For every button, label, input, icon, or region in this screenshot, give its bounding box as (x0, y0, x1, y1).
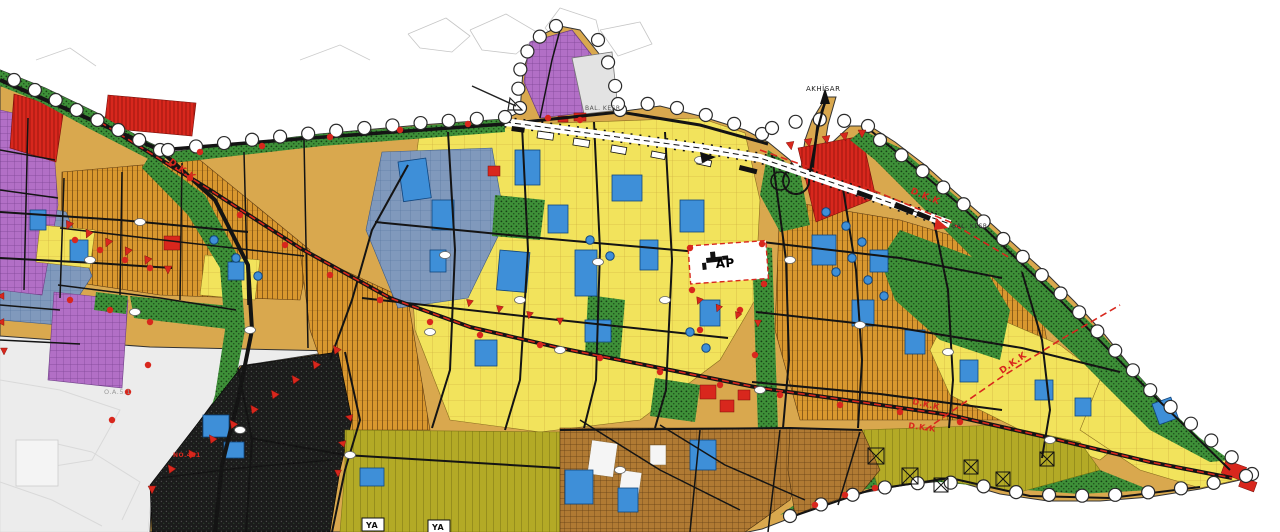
facility-parcel-blue (432, 200, 454, 230)
facility-parcel-blue (475, 340, 497, 366)
tree-row-circles (302, 127, 315, 140)
road-number-badge (440, 252, 451, 259)
facility-parcel-blue (905, 330, 925, 354)
facility-parcel-blue (640, 240, 658, 270)
junction-red-dots (697, 327, 703, 333)
road-number-badge (245, 327, 256, 334)
road-number-badge (135, 219, 146, 226)
tree-row-circles (533, 30, 546, 43)
road-number-badge (785, 257, 796, 264)
tree-row-circles (1164, 400, 1177, 413)
junction-red-dots (107, 307, 113, 313)
label-no451: NO.451 (173, 452, 201, 459)
tree-row-circles (838, 114, 851, 127)
facility-parcel-blue (618, 488, 638, 512)
tree-row-circles (977, 480, 990, 493)
tree-row-circles (1144, 384, 1157, 397)
junction-red-dots (147, 319, 153, 325)
tree-row-circles (442, 114, 455, 127)
tree-row-circles (789, 115, 802, 128)
roundabout-blue-dots (864, 276, 872, 284)
facility-parcel-blue (565, 470, 593, 504)
facility-parcel-blue (680, 200, 704, 232)
facility-parcel-blue (575, 250, 597, 296)
tree-row-circles (699, 108, 712, 121)
junction-red-dots (259, 143, 265, 149)
tree-row-circles (1076, 489, 1089, 502)
tree-row-circles (499, 111, 512, 124)
junction-red-dots (687, 245, 693, 251)
label-ya-1: YA (365, 521, 379, 530)
road-number-badge (943, 349, 954, 356)
road-number-badge (85, 257, 96, 264)
road-number-badge (345, 452, 356, 459)
tree-row-circles (274, 130, 287, 143)
junction-red-dots (427, 319, 433, 325)
facility-parcel-blue (1075, 398, 1091, 416)
tree-row-circles (218, 137, 231, 150)
tree-row-circles (957, 198, 970, 211)
road-number-badge (130, 309, 141, 316)
junction-red-dots (237, 212, 243, 218)
label-ya-2: YA (431, 523, 445, 532)
tree-row-circles (1142, 486, 1155, 499)
road-number-badge (425, 329, 436, 336)
facility-parcel-blue (515, 150, 540, 185)
label-ap: AP (715, 256, 735, 271)
tree-row-circles (670, 102, 683, 115)
road-number-badge (755, 387, 766, 394)
junction-red-dots (465, 121, 471, 127)
tree-row-circles (8, 74, 21, 87)
junction-red-dots (197, 149, 203, 155)
facility-parcel-blue (360, 468, 384, 486)
roundabout-blue-dots (832, 268, 840, 276)
roundabout-blue-dots (822, 208, 830, 216)
green-patch-2 (650, 378, 700, 422)
roundabout-blue-dots (880, 292, 888, 300)
road-number-badge (235, 427, 246, 434)
tree-row-circles (1175, 482, 1188, 495)
tree-row-circles (514, 63, 527, 76)
junction-red-dots (537, 342, 543, 348)
tree-row-circles (592, 34, 605, 47)
tree-row-circles (358, 122, 371, 135)
junction-red-dots (717, 382, 723, 388)
tree-row-circles (602, 56, 615, 69)
facility-parcel-blue (960, 360, 978, 382)
tree-row-circles (91, 114, 104, 127)
tree-row-circles (49, 94, 62, 107)
roundabout-blue-dots (210, 236, 218, 244)
zoning-map-stage: AKHİSARBAL. KESRBAL. KESRD.K.KD.K.KD.K.K… (0, 0, 1280, 532)
tree-row-circles (162, 144, 175, 157)
label-balikesir-1: BAL. KESR (585, 105, 621, 112)
road-number-badge (555, 347, 566, 354)
tree-row-circles (609, 79, 622, 92)
cadastral-building (16, 440, 58, 486)
junction-red-dots (397, 127, 403, 133)
facility-parcel-blue (398, 158, 431, 202)
label-akhisar: AKHİSAR (806, 84, 840, 93)
junction-red-dots (761, 281, 767, 287)
tree-row-circles (728, 117, 741, 130)
roundabout-blue-dots (232, 254, 240, 262)
roundabout-blue-dots (858, 238, 866, 246)
facility-parcel-blue (612, 175, 642, 201)
tree-row-circles (1016, 250, 1029, 263)
zoning-map[interactable]: AKHİSARBAL. KESRBAL. KESRD.K.KD.K.KD.K.K… (0, 0, 1280, 532)
tree-row-circles (784, 510, 797, 523)
tree-row-circles (1240, 470, 1253, 483)
junction-red-dots (327, 134, 333, 140)
tree-row-circles (70, 104, 83, 117)
roundabout-blue-dots (606, 252, 614, 260)
tree-row-circles (1035, 269, 1048, 282)
label-balikesir-2: BAL. KESR (952, 223, 988, 230)
junction-red-dots (477, 332, 483, 338)
tree-row-circles (414, 117, 427, 130)
junction-red-dots (597, 355, 603, 361)
roundabout-blue-dots (848, 254, 856, 262)
roundabout-blue-dots (842, 222, 850, 230)
tree-row-circles (1184, 417, 1197, 430)
facility-parcel-blue (870, 250, 888, 272)
junction-red-dots (759, 241, 765, 247)
facility-parcel-blue (228, 262, 244, 280)
junction-red-dots (72, 237, 78, 243)
roundabout-blue-dots (702, 344, 710, 352)
tree-row-circles (1126, 364, 1139, 377)
junction-red-dots (377, 297, 383, 303)
commercial-small-red (700, 385, 716, 399)
oldtown-white-patch (650, 445, 666, 465)
junction-red-dots (97, 247, 103, 253)
tree-row-circles (1109, 344, 1122, 357)
junction-red-dots (752, 352, 758, 358)
junction-red-dots (109, 417, 115, 423)
tree-row-circles (28, 84, 41, 97)
tree-row-circles (997, 232, 1010, 245)
tree-row-circles (550, 20, 563, 33)
tree-row-circles (512, 82, 525, 95)
road-number-badge (515, 297, 526, 304)
junction-red-dots (777, 392, 783, 398)
junction-red-dots (122, 257, 128, 263)
tree-row-circles (133, 134, 146, 147)
tree-row-circles (1109, 488, 1122, 501)
junction-red-dots (147, 265, 153, 271)
tree-row-circles (1054, 287, 1067, 300)
junction-red-dots (657, 369, 663, 375)
junction-red-dots (812, 502, 818, 508)
facility-parcel-blue (700, 300, 720, 326)
commercial-small-red (164, 236, 180, 250)
commercial-small-red (488, 166, 500, 176)
tree-row-circles (1073, 306, 1086, 319)
junction-red-dots (842, 492, 848, 498)
junction-red-dots (327, 272, 333, 278)
roundabout-blue-dots (686, 328, 694, 336)
road-number-badge (660, 297, 671, 304)
facility-parcel-blue (30, 210, 46, 230)
tree-row-circles (937, 181, 950, 194)
facility-parcel-blue (1035, 380, 1053, 400)
junction-red-dots (957, 419, 963, 425)
tree-row-circles (766, 122, 779, 135)
tree-row-circles (1091, 325, 1104, 338)
facility-parcel-blue (548, 205, 568, 233)
junction-red-dots (872, 485, 878, 491)
commercial-small-red (720, 400, 734, 412)
tree-row-circles (112, 124, 125, 137)
tree-row-circles (1207, 476, 1220, 489)
junction-red-dots (67, 297, 73, 303)
junction-red-dots (577, 117, 583, 123)
tree-row-circles (246, 133, 259, 146)
tree-row-circles (874, 134, 887, 147)
ap-symbol-black (702, 263, 707, 270)
tree-row-circles (1225, 451, 1238, 464)
tree-row-circles (521, 45, 534, 58)
junction-red-dots (145, 362, 151, 368)
roundabout-blue-dots (254, 272, 262, 280)
junction-red-dots (689, 287, 695, 293)
road-number-badge (1045, 437, 1056, 444)
tree-row-circles (916, 165, 929, 178)
tree-row-circles (1010, 486, 1023, 499)
junction-red-dots (897, 409, 903, 415)
tree-row-circles (1205, 434, 1218, 447)
tree-row-circles (895, 149, 908, 162)
junction-red-dots (837, 402, 843, 408)
junction-red-dots (545, 115, 551, 121)
road-number-badge (593, 259, 604, 266)
road-number-badge (615, 467, 626, 474)
facility-parcel-blue (690, 440, 716, 470)
facility-parcel-blue (203, 415, 229, 437)
tree-row-circles (470, 112, 483, 125)
roundabout-blue-dots (586, 236, 594, 244)
tree-row-circles (641, 97, 654, 110)
label-oa51: O.A.5.1 (104, 388, 131, 396)
tree-row-circles (878, 481, 891, 494)
junction-red-dots (282, 242, 288, 248)
tree-row-circles (1043, 488, 1056, 501)
commercial-small-red (738, 390, 750, 400)
road-number-badge (855, 322, 866, 329)
